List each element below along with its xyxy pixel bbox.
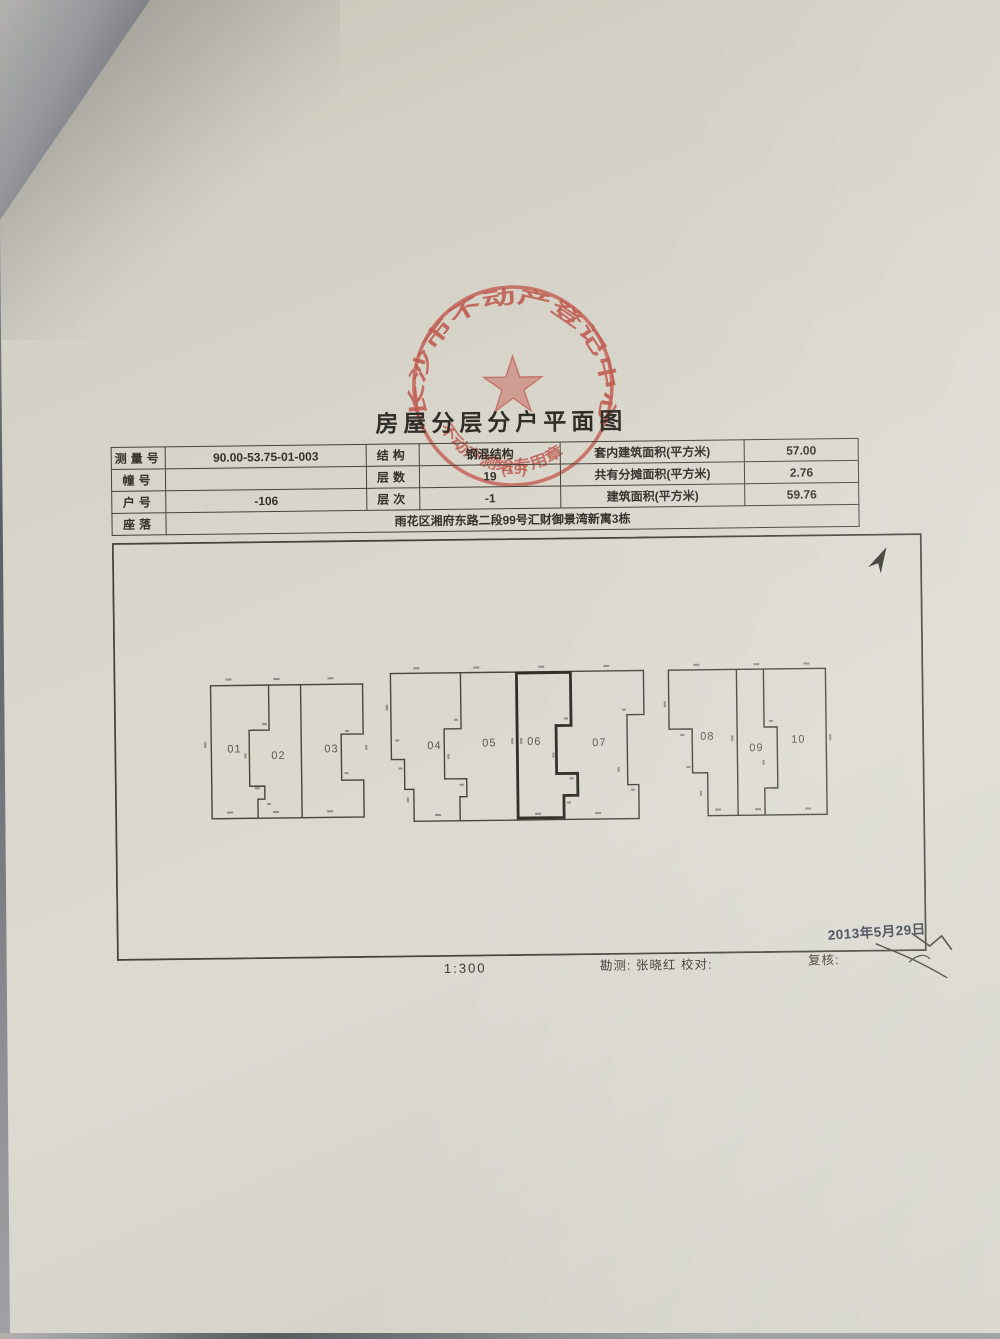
value-building-number xyxy=(165,466,366,490)
value-floor-count: 19 xyxy=(419,464,560,488)
unit-label-09: 09 xyxy=(749,742,763,754)
info-table: 测量号 90.00-53.75-01-003 结构 钢混结构 套内建筑面积(平方… xyxy=(111,438,860,536)
label-shared-area: 共有分摊面积(平方米) xyxy=(560,462,744,486)
value-survey-number: 90.00-53.75-01-003 xyxy=(165,444,366,468)
value-floor-level: -1 xyxy=(420,486,561,510)
value-gross-area: 59.76 xyxy=(745,482,859,505)
label-survey-number: 测量号 xyxy=(111,447,165,470)
unit-label-03: 03 xyxy=(324,743,338,755)
paper-sheet: 长沙市不动产登记中心 不动产测绘专用章 (19) 房屋分层分户平面图 测量号 9… xyxy=(0,0,1000,1333)
label-floor-level: 层次 xyxy=(367,488,420,511)
surveyor-line: 勘测: 张晓红 校对: xyxy=(600,954,713,974)
unit-label-01: 01 xyxy=(227,743,241,755)
label-gross-area: 建筑面积(平方米) xyxy=(561,484,745,508)
scale-label: 1:300 xyxy=(444,960,487,976)
unit-label-10: 10 xyxy=(791,734,805,746)
value-interior-area: 57.00 xyxy=(744,438,858,461)
floor-plan: 01 02 03 04 05 06 07 08 09 10 xyxy=(112,533,927,961)
label-address: 座落 xyxy=(112,513,166,536)
value-unit-number: -106 xyxy=(166,488,367,512)
value-shared-area: 2.76 xyxy=(744,460,858,483)
label-floor-count: 层数 xyxy=(366,466,419,489)
label-unit-number: 户号 xyxy=(112,491,166,514)
unit-label-02: 02 xyxy=(271,750,285,762)
unit-label-08: 08 xyxy=(700,731,714,743)
subject-unit-outline xyxy=(516,672,578,818)
unit-label-05: 05 xyxy=(482,737,496,749)
page-title: 房屋分层分户平面图 xyxy=(375,401,655,438)
label-interior-area: 套内建筑面积(平方米) xyxy=(560,440,744,464)
north-arrow-icon xyxy=(868,544,892,574)
label-structure: 结构 xyxy=(366,444,419,467)
label-building-number: 幢号 xyxy=(111,469,165,492)
document-content: 长沙市不动产登记中心 不动产测绘专用章 (19) 房屋分层分户平面图 测量号 9… xyxy=(0,0,1000,1339)
unit-label-04: 04 xyxy=(427,740,441,752)
review-label: 复核: xyxy=(808,949,840,968)
unit-label-07: 07 xyxy=(592,737,606,749)
unit-label-06: 06 xyxy=(527,736,541,748)
value-structure: 钢混结构 xyxy=(419,442,560,466)
